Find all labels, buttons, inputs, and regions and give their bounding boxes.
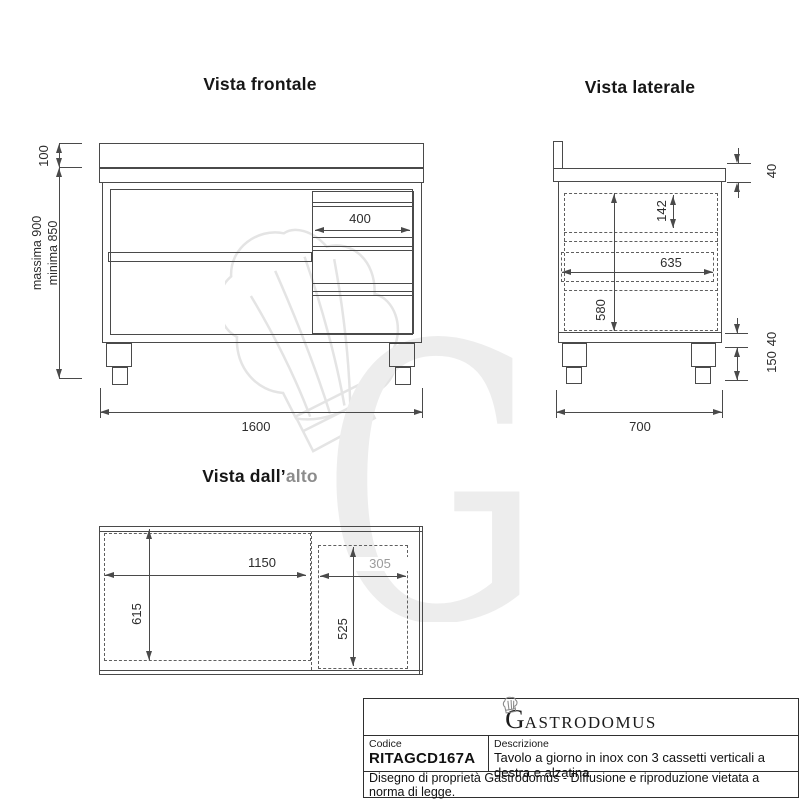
drawing-line [100, 412, 423, 413]
side-view-title: Vista laterale [530, 77, 750, 98]
drawing-line [722, 390, 723, 418]
front-width-dim: 1600 [226, 420, 286, 434]
top-view-title: Vista dall’alto [150, 466, 370, 487]
front-height-max: massima 900 [29, 208, 45, 298]
top-drawer-width-dim: 305 [350, 557, 410, 571]
side-depth-dim: 700 [610, 420, 670, 434]
drawing-line [313, 295, 413, 296]
drawing-canvas: G Vista frontale 400 1600 100 massima 90… [0, 0, 800, 800]
drawing-line [105, 572, 114, 578]
title-block-brand-row: GASTRODOMUS [364, 699, 798, 736]
side-inner-depth-dim: 635 [646, 256, 696, 270]
description-cell: Descrizione Tavolo a giorno in inox con … [489, 736, 798, 771]
drawing-line [146, 651, 152, 660]
side-right-foot [695, 367, 711, 384]
drawing-line [734, 183, 740, 192]
drawing-line [397, 573, 406, 579]
drawing-line [558, 332, 722, 333]
drawing-line [401, 227, 410, 233]
drawing-line [56, 168, 62, 177]
front-left-foot [112, 367, 128, 385]
drawing-line [100, 409, 109, 415]
drawing-line [313, 202, 413, 203]
drawing-line [105, 575, 306, 576]
description-label: Descrizione [494, 738, 793, 750]
drawing-line [556, 409, 565, 415]
drawing-line [59, 378, 82, 379]
brand-hat-icon [500, 696, 520, 714]
title-block-data-row: Codice RITAGCD167A Descrizione Tavolo a … [364, 736, 798, 772]
drawing-line [725, 333, 748, 334]
drawing-line [734, 371, 740, 380]
drawing-line [353, 547, 354, 666]
drawing-line [564, 290, 718, 291]
drawing-line [734, 348, 740, 357]
drawing-line [562, 269, 571, 275]
top-drawer-depth-dim: 525 [336, 609, 350, 649]
drawing-line [350, 657, 356, 666]
legal-row: Disegno di proprietà Gastrodomus - Diffu… [364, 772, 798, 798]
side-left-leg [562, 343, 587, 367]
drawing-line [313, 206, 413, 207]
drawing-line [146, 530, 152, 539]
front-drawer-width-dim: 400 [330, 212, 390, 226]
code-value: RITAGCD167A [369, 750, 483, 767]
top-view-title-main: Vista dall’ [202, 466, 286, 486]
drawing-line [504, 697, 518, 713]
front-right-foot [395, 367, 411, 385]
top-open-depth-dim: 615 [130, 594, 144, 634]
front-upstand [99, 143, 424, 169]
drawing-line [419, 526, 420, 675]
drawing-line [564, 241, 718, 242]
code-cell: Codice RITAGCD167A [364, 736, 489, 771]
drawer-separator [312, 237, 414, 238]
top-open-width-dim: 1150 [232, 556, 292, 570]
side-worktop [553, 168, 726, 182]
front-right-leg [389, 343, 415, 367]
drawing-line [320, 576, 406, 577]
drawing-line [508, 701, 509, 710]
drawing-line [59, 143, 82, 144]
drawing-line [734, 324, 740, 333]
drawing-line [56, 369, 62, 378]
title-block: GASTRODOMUS Codice RITAGCD167A Descrizio… [363, 698, 799, 798]
drawing-line [149, 529, 150, 660]
drawing-line [315, 227, 324, 233]
top-divider-dashed [311, 531, 312, 670]
drawing-line [564, 232, 718, 233]
drawing-line [725, 380, 748, 381]
front-left-leg [106, 343, 132, 367]
drawing-line [315, 230, 410, 231]
front-height-min: minima 850 [45, 208, 61, 298]
front-middle-shelf [108, 252, 312, 262]
drawing-line [713, 409, 722, 415]
drawing-line [734, 154, 740, 163]
side-left-foot [566, 367, 582, 384]
drawing-line [56, 144, 62, 153]
front-worktop [99, 167, 424, 183]
front-height-dim: massima 900 minima 850 [29, 208, 61, 298]
drawing-line [614, 193, 615, 331]
front-view-title: Vista frontale [150, 74, 370, 95]
drawing-line [59, 167, 82, 168]
side-inner-height-dim: 580 [594, 280, 608, 340]
drawing-line [704, 269, 713, 275]
drawing-line [670, 196, 676, 205]
drawing-line [56, 158, 62, 167]
brand-name: ASTRODOMUS [525, 713, 657, 732]
drawing-line [313, 246, 413, 247]
top-view-title-suffix: alto [286, 466, 318, 486]
drawing-line [556, 412, 723, 413]
brand-logo: GASTRODOMUS [505, 708, 657, 735]
drawing-line [350, 548, 356, 557]
side-drawer-height-dim: 142 [655, 191, 669, 231]
drawing-line [313, 291, 413, 292]
drawing-line [562, 272, 713, 273]
side-upstand [553, 141, 563, 169]
side-leg-height-dim: 150 [765, 342, 779, 382]
drawing-line [414, 409, 423, 415]
drawing-line [504, 697, 518, 710]
side-right-leg [691, 343, 716, 367]
drawing-line [313, 250, 413, 251]
drawing-line [511, 700, 512, 709]
side-worktop-thickness-dim: 40 [765, 156, 779, 186]
drawing-line [611, 322, 617, 331]
front-upstand-height-dim: 100 [37, 141, 51, 171]
code-label: Codice [369, 738, 483, 750]
drawing-line [297, 572, 306, 578]
drawing-line [727, 163, 751, 164]
drawing-line [320, 573, 329, 579]
drawer-separator [312, 283, 414, 284]
drawing-line [99, 670, 423, 671]
drawing-line [670, 219, 676, 228]
drawing-line [611, 194, 617, 203]
legal-text: Disegno di proprietà Gastrodomus - Diffu… [369, 771, 793, 799]
